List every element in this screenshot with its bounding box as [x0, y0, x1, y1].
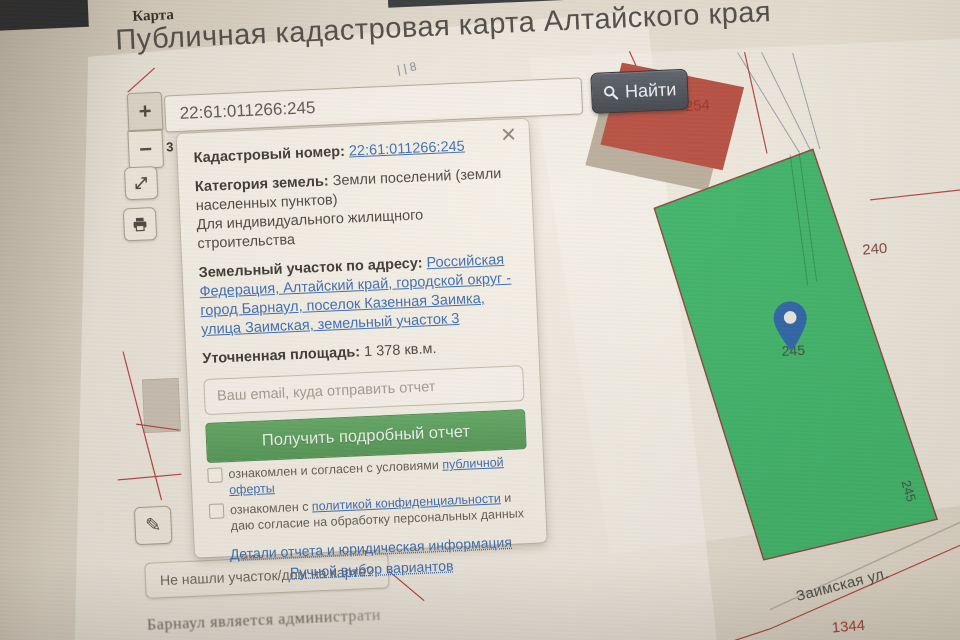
cadastral-number-label: Кадастровый номер:	[193, 144, 345, 167]
fullscreen-button[interactable]	[124, 166, 158, 200]
info-panel: ✕ Кадастровый номер: 22:61:011266:245 Ка…	[177, 119, 547, 558]
find-button-label: Найти	[625, 79, 677, 102]
print-button[interactable]	[123, 207, 157, 241]
zoom-in-button[interactable]: +	[127, 92, 164, 131]
area-label: Уточненная площадь:	[202, 344, 360, 367]
parcel-label-1344: 1344	[831, 617, 866, 637]
pencil-icon: ✎	[145, 514, 162, 538]
map-pin-icon	[773, 301, 809, 352]
area-value: 1 378 кв.м.	[364, 341, 437, 360]
land-category-label: Категория земель:	[195, 173, 329, 195]
search-icon	[603, 85, 619, 101]
privacy-consent-checkbox[interactable]	[209, 503, 225, 519]
printer-icon	[131, 215, 149, 233]
area-row: Уточненная площадь: 1 378 кв.м.	[202, 336, 523, 369]
zoom-level: 3	[166, 139, 174, 154]
cadastral-number-row: Кадастровый номер: 22:61:011266:245	[193, 135, 514, 168]
gray-building-shape[interactable]	[142, 378, 180, 433]
find-button[interactable]: Найти	[590, 69, 689, 114]
email-input[interactable]	[203, 365, 524, 415]
photo-of-screen: Карта Публичная кадастровая карта Алтайс…	[0, 0, 960, 640]
zoom-out-button[interactable]: −	[127, 130, 164, 169]
browser-page: Карта Публичная кадастровая карта Алтайс…	[0, 0, 960, 640]
close-icon[interactable]: ✕	[500, 125, 518, 146]
draw-edit-button[interactable]: ✎	[134, 506, 173, 546]
offer-consent-prefix: ознакомлен и согласен с условиями	[228, 458, 442, 481]
privacy-consent-prefix: ознакомлен с	[230, 500, 312, 518]
manual-select-link[interactable]: Ручной выбор вариантов	[290, 557, 454, 580]
cadastral-number-link[interactable]: 22:61:011266:245	[349, 139, 465, 160]
offer-consent-checkbox[interactable]	[207, 467, 223, 483]
parcel-label-240: 240	[862, 240, 888, 259]
address-row: Земельный участок по адресу: Российская …	[198, 250, 521, 340]
diagonal-arrows-icon	[132, 174, 150, 192]
report-details-link[interactable]: Детали отчета и юридическая информация	[230, 534, 513, 562]
